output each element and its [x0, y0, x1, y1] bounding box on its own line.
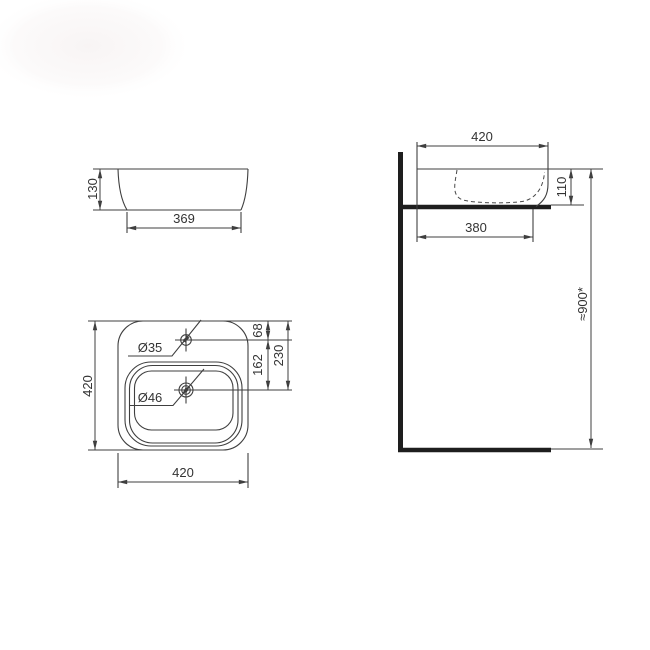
- dim-label-162: 162: [250, 354, 265, 376]
- plan-depth-dimension: 420: [80, 321, 142, 450]
- washbasin-dimension-drawing: 130 369 Ø35: [0, 0, 650, 650]
- front-view: 130 369: [85, 169, 248, 233]
- faucet-hole: Ø35: [128, 320, 292, 356]
- front-basin-outline: [118, 169, 248, 210]
- front-height-dimension: 130: [85, 169, 127, 210]
- base-width-dimension: 380: [417, 220, 533, 237]
- dim-label-420-bottom: 420: [172, 465, 194, 480]
- dim-label-420-left: 420: [80, 375, 95, 397]
- mounting-height-dimension: ≈900*: [575, 169, 591, 448]
- dim-label-drain-hole: Ø46: [138, 390, 163, 405]
- watermark-blob: [0, 0, 193, 101]
- dim-label-110: 110: [554, 177, 569, 198]
- plan-width-dimension: 420: [118, 453, 248, 488]
- dim-label-369: 369: [173, 211, 195, 226]
- hidden-bowl-profile: [455, 170, 545, 203]
- dim-label-420-top: 420: [471, 129, 493, 144]
- dim-label-faucet-hole: Ø35: [138, 340, 163, 355]
- dim-label-900: ≈900*: [575, 287, 590, 321]
- side-basin-outline: [417, 142, 603, 242]
- dim-label-130: 130: [85, 178, 100, 200]
- side-view-installed: 420 110 380 ≈900*: [398, 129, 603, 452]
- side-width-dimension: 420: [417, 129, 548, 146]
- basin-height-dimension: 110: [554, 169, 571, 205]
- top-view: Ø35 Ø46 420 420: [80, 320, 292, 488]
- hole-position-dimensions: 68 162 230: [250, 321, 288, 390]
- front-width-dimension: 369: [127, 211, 241, 233]
- technical-drawing-page: 130 369 Ø35: [0, 0, 650, 650]
- dim-label-380: 380: [465, 220, 487, 235]
- dim-label-230: 230: [271, 345, 286, 367]
- dim-label-68: 68: [250, 323, 265, 337]
